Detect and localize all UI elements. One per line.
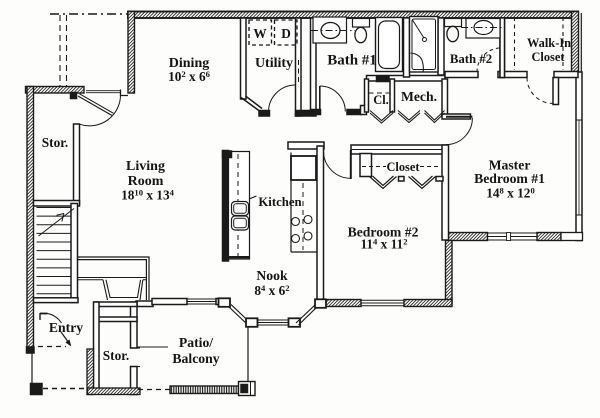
svg-text:Bedroom #1: Bedroom #1 (474, 171, 545, 186)
svg-text:102 x 66: 102 x 66 (168, 69, 211, 84)
svg-text:Closet: Closet (531, 50, 565, 64)
svg-text:Mech.: Mech. (401, 89, 437, 104)
svg-text:Bath #2: Bath #2 (450, 52, 492, 66)
svg-text:Stor.: Stor. (42, 135, 68, 150)
svg-text:114 x 112: 114 x 112 (360, 237, 407, 252)
svg-text:Closet: Closet (386, 160, 420, 174)
svg-text:Bath #1: Bath #1 (327, 53, 377, 69)
svg-text:1810 x 134: 1810 x 134 (121, 188, 174, 203)
svg-text:Balcony: Balcony (172, 351, 219, 366)
svg-text:W: W (253, 26, 267, 41)
svg-text:84 x 62: 84 x 62 (254, 283, 289, 298)
svg-text:Nook: Nook (256, 268, 288, 283)
svg-text:148 x 120: 148 x 120 (486, 186, 534, 201)
svg-text:Cl.: Cl. (373, 93, 389, 107)
svg-text:Stor.: Stor. (103, 348, 129, 363)
svg-text:D: D (281, 26, 291, 41)
svg-text:Utility: Utility (255, 56, 293, 71)
svg-text:Walk-In: Walk-In (527, 36, 571, 50)
svg-text:Kitchen: Kitchen (258, 195, 301, 209)
svg-text:Living: Living (126, 159, 165, 174)
svg-text:Patio/: Patio/ (179, 335, 213, 350)
svg-text:Entry: Entry (49, 320, 83, 335)
